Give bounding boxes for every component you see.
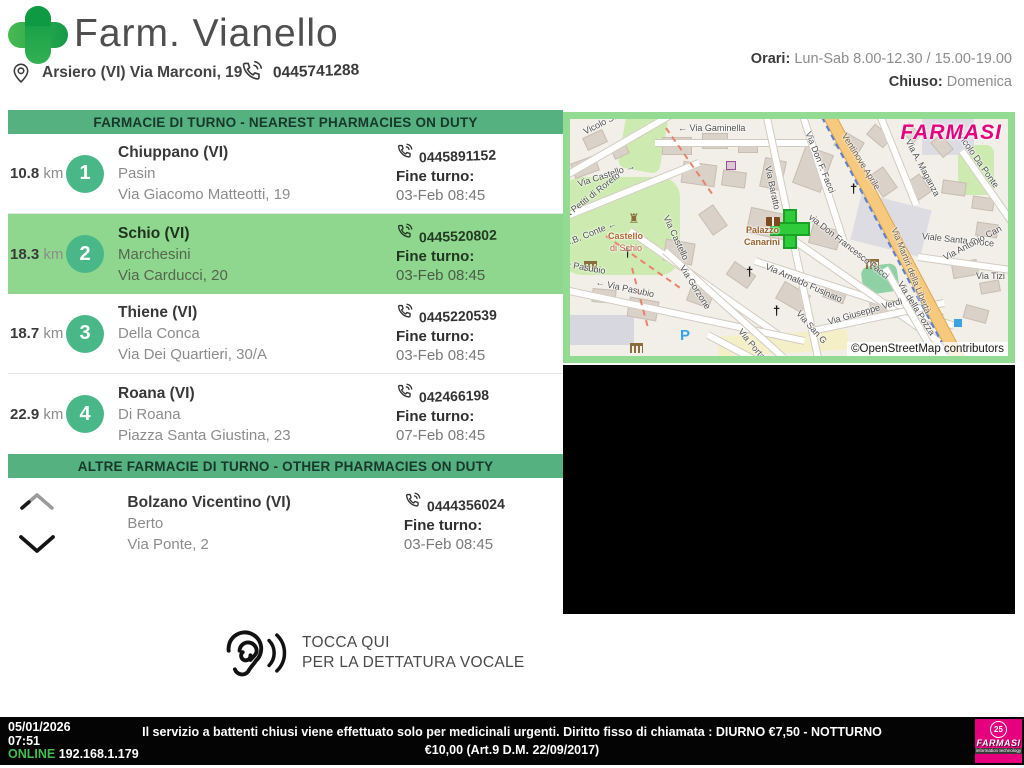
map-street-label: Castello	[608, 231, 643, 241]
pharmacy-name: Marchesini	[118, 244, 396, 265]
fine-turno-value: 03-Feb 08:45	[396, 266, 556, 285]
fine-turno-label: Fine turno:	[396, 167, 556, 186]
pharmacy-row-1[interactable]: 10.8 km 1 Chiuppano (VI) Pasin Via Giaco…	[8, 134, 563, 214]
footer-ip: 192.168.1.179	[55, 747, 138, 761]
pharmacy-row-3[interactable]: 18.7 km 3 Thiene (VI) Della Conca Via De…	[8, 294, 563, 374]
distance: 18.7 km	[8, 325, 66, 342]
pharmacy-name: Berto	[127, 513, 403, 534]
church-icon: †	[850, 181, 857, 196]
pharmacy-city: Thiene (VI)	[118, 302, 396, 323]
rank-badge: 3	[66, 315, 104, 353]
map-street-label: di Schio	[610, 243, 642, 253]
scroll-down-arrow[interactable]	[18, 533, 56, 555]
pharmacy-phone: 0445220539	[419, 305, 497, 327]
pharmacy-street: Via Ponte, 2	[127, 534, 403, 555]
pharmacy-kiosk-screen: Farm. Vianello Arsiero (VI) Via Marconi,…	[0, 0, 1024, 768]
blank-video-pane	[563, 365, 1015, 614]
fine-turno-value: 03-Feb 08:45	[396, 186, 556, 205]
ear-icon	[224, 622, 294, 684]
other-pharmacies-banner: ALTRE FARMACIE DI TURNO - OTHER PHARMACI…	[8, 454, 563, 478]
castle-icon: ♜	[628, 211, 640, 227]
phone-icon	[404, 492, 421, 509]
distance: 10.8 km	[8, 165, 66, 182]
opening-hours: Orari: Lun-Sab 8.00-12.30 / 15.00-19.00 …	[751, 48, 1012, 94]
church-icon: †	[773, 303, 780, 318]
fine-turno-label: Fine turno:	[396, 327, 556, 346]
pharmacy-phone: 0445520802	[419, 226, 497, 248]
pharmacy-cross-logo	[8, 6, 68, 68]
street-map[interactable]: † † † † ♜ P Vicolo Santa Maria← Via Gami…	[570, 119, 1008, 356]
phone-icon	[396, 223, 413, 240]
phone-icon	[396, 143, 413, 160]
phone-icon	[240, 60, 263, 83]
shop-icon	[726, 161, 736, 170]
status-footer: 05/01/2026 07:51 ONLINE 192.168.1.179 Il…	[0, 717, 1024, 765]
location-pin-icon	[10, 61, 32, 85]
rank-badge: 1	[66, 155, 104, 193]
distance: 18.3 km	[8, 246, 66, 263]
pharmacy-city: Roana (VI)	[118, 383, 396, 404]
pharmacy-street: Piazza Santa Giustina, 23	[118, 425, 396, 446]
fine-turno-value: 03-Feb 08:45	[404, 535, 563, 554]
phone-icon	[396, 303, 413, 320]
pharmacy-street: Via Dei Quartieri, 30/A	[118, 344, 396, 365]
page-title: Farm. Vianello	[74, 12, 339, 56]
map-container: † † † † ♜ P Vicolo Santa Maria← Via Gami…	[563, 112, 1015, 363]
scroll-up-arrow[interactable]	[19, 491, 55, 511]
pharmacy-name: Di Roana	[118, 404, 396, 425]
rank-badge: 2	[66, 235, 104, 273]
pharmacy-phone: 042466198	[419, 386, 490, 407]
voice-line-2: PER LA DETTATURA VOCALE	[302, 653, 525, 673]
fine-turno-label: Fine turno:	[396, 407, 556, 426]
parking-icon: P	[680, 327, 690, 344]
map-street-label: Palazzo	[746, 225, 779, 235]
pharmacy-address: Arsiero (VI) Via Marconi, 19	[42, 64, 242, 82]
footer-date: 05/01/2026	[8, 721, 139, 735]
voice-dictation-button[interactable]: TOCCA QUI PER LA DETTATURA VOCALE	[224, 622, 525, 684]
fine-turno-value: 03-Feb 08:45	[396, 346, 556, 365]
farmasi-watermark: FARMASI	[901, 121, 1003, 145]
pharmacy-row-4[interactable]: 22.9 km 4 Roana (VI) Di Roana Piazza San…	[8, 374, 563, 454]
pharmacy-name: Pasin	[118, 163, 396, 184]
pharmacy-phone: 0445741288	[273, 61, 360, 82]
church-icon: †	[746, 264, 753, 279]
pharmacy-phone: 0444356024	[427, 495, 505, 517]
map-street-label: Via Tizi	[976, 271, 1005, 281]
farmasi-logo: 25 FARMASI information technology	[975, 719, 1022, 763]
map-street-label: Canarini	[744, 237, 780, 247]
pharmacy-city: Bolzano Vicentino (VI)	[127, 492, 403, 513]
fine-turno-value: 07-Feb 08:45	[396, 426, 556, 445]
footer-time: 07:51	[8, 735, 139, 749]
pharmacy-street: Via Giacomo Matteotti, 19	[118, 184, 396, 205]
online-status: ONLINE	[8, 747, 55, 761]
nearest-pharmacies-banner: FARMACIE DI TURNO - NEAREST PHARMACIES O…	[8, 110, 563, 134]
service-notice: Il servizio a battenti chiusi viene effe…	[132, 723, 892, 759]
map-street-label: ← Via Gaminella	[678, 123, 745, 133]
pharmacy-phone: 0445891152	[419, 145, 497, 167]
pharmacy-row-2-selected[interactable]: 18.3 km 2 Schio (VI) Marchesini Via Card…	[8, 214, 563, 294]
fine-turno-label: Fine turno:	[396, 247, 556, 266]
other-pharmacy-row[interactable]: Bolzano Vicentino (VI) Berto Via Ponte, …	[8, 478, 563, 568]
fine-turno-label: Fine turno:	[404, 516, 563, 535]
voice-line-1: TOCCA QUI	[302, 633, 525, 653]
rank-badge: 4	[66, 395, 104, 433]
pharmacy-name: Della Conca	[118, 323, 396, 344]
museum-icon	[630, 343, 643, 353]
pharmacy-city: Chiuppano (VI)	[118, 142, 396, 163]
pharmacy-street: Via Carducci, 20	[118, 265, 396, 286]
phone-icon	[396, 383, 413, 400]
distance: 22.9 km	[8, 406, 66, 423]
info-icon	[954, 319, 962, 327]
map-attribution: ©OpenStreetMap contributors	[847, 342, 1008, 356]
pharmacy-city: Schio (VI)	[118, 223, 396, 244]
